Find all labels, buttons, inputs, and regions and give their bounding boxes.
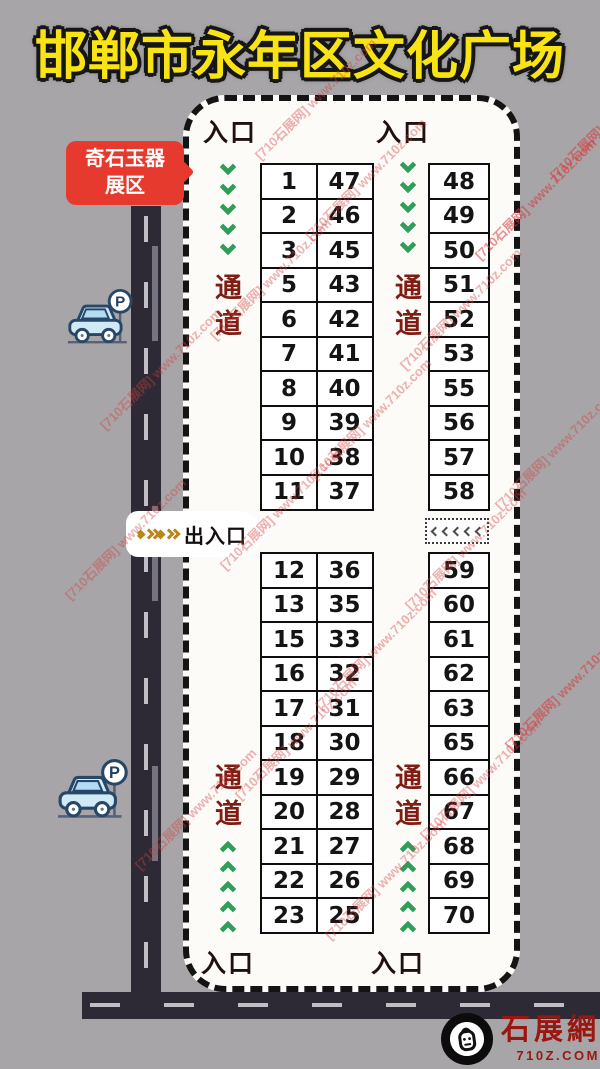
aisle-label-top-middle: 通道 <box>387 273 426 345</box>
stall-cell: 30 <box>316 725 374 762</box>
chevron-down-icon <box>220 199 237 216</box>
stall-cell: 56 <box>428 405 490 442</box>
stall-row: 67 <box>428 794 490 831</box>
chevron-down-icon <box>220 239 237 256</box>
chevron-down-icon <box>400 197 417 214</box>
entrance-label-top-left: 入口 <box>203 113 257 149</box>
stall-row: 66 <box>428 759 490 796</box>
site-url: 710Z.COM <box>516 1048 600 1063</box>
stall-cell: 55 <box>428 370 490 407</box>
stall-row: 2325 <box>260 897 374 934</box>
stall-cell: 37 <box>316 474 374 511</box>
stall-cell: 31 <box>316 690 374 727</box>
road-lane-marking <box>144 216 148 996</box>
stall-cell: 42 <box>316 301 374 338</box>
stall-cell: 21 <box>260 828 318 865</box>
stall-cell: 8 <box>260 370 318 407</box>
stall-cell: 50 <box>428 232 490 269</box>
stall-row: 543 <box>260 267 374 304</box>
stall-cell: 49 <box>428 198 490 235</box>
stall-cell: 47 <box>316 163 374 200</box>
parking-car-icon: P <box>56 758 138 822</box>
stall-row: 1533 <box>260 621 374 658</box>
chevron-up-icon <box>400 841 417 858</box>
stall-row: 49 <box>428 198 490 235</box>
aisle-arrows-down-left <box>213 161 243 253</box>
chevron-up-icon <box>400 921 417 938</box>
badge-line2: 展区 <box>105 173 145 200</box>
aisle-label-top-left: 通道 <box>207 273 246 345</box>
stall-cell: 58 <box>428 474 490 511</box>
stall-table-bottom-right: 5960616263656667686970 <box>428 552 490 934</box>
stone-glyph-icon <box>455 1024 479 1054</box>
stall-cell: 13 <box>260 587 318 624</box>
stall-cell: 29 <box>316 759 374 796</box>
chevron-up-icon <box>400 901 417 918</box>
parking-p-sign: P <box>109 764 120 782</box>
stall-cell: 52 <box>428 301 490 338</box>
side-gate-marker <box>425 518 489 544</box>
stall-row: 1632 <box>260 656 374 693</box>
stall-row: 52 <box>428 301 490 338</box>
parking-p-sign: P <box>115 294 125 311</box>
stall-cell: 67 <box>428 794 490 831</box>
chevron-down-icon <box>400 237 417 254</box>
stall-row: 1137 <box>260 474 374 511</box>
chevron-left-icon <box>452 526 462 536</box>
stall-cell: 12 <box>260 552 318 589</box>
stall-cell: 63 <box>428 690 490 727</box>
stall-row: 1929 <box>260 759 374 796</box>
stall-row: 2127 <box>260 828 374 865</box>
stall-row: 1830 <box>260 725 374 762</box>
aisle-arrows-down-middle <box>393 159 423 251</box>
stall-row: 51 <box>428 267 490 304</box>
stall-cell: 6 <box>260 301 318 338</box>
entrance-exit-gate: 出入口 <box>126 511 262 557</box>
stall-cell: 23 <box>260 897 318 934</box>
stall-cell: 38 <box>316 439 374 476</box>
stall-row: 63 <box>428 690 490 727</box>
stall-cell: 66 <box>428 759 490 796</box>
badge-line1: 奇石玉器 <box>85 146 165 173</box>
stall-row: 246 <box>260 198 374 235</box>
stall-cell: 11 <box>260 474 318 511</box>
stall-row: 2226 <box>260 863 374 900</box>
stall-cell: 32 <box>316 656 374 693</box>
stall-cell: 17 <box>260 690 318 727</box>
stall-cell: 25 <box>316 897 374 934</box>
stall-table-top-left: 14724634554364274184093910381137 <box>260 163 374 511</box>
stall-cell: 27 <box>316 828 374 865</box>
stall-cell: 33 <box>316 621 374 658</box>
chevron-up-icon <box>220 881 237 898</box>
stall-cell: 45 <box>316 232 374 269</box>
stall-cell: 40 <box>316 370 374 407</box>
chevron-left-icon <box>430 526 440 536</box>
aisle-arrows-up-middle <box>393 843 423 935</box>
chevron-up-icon <box>400 861 417 878</box>
stall-cell: 53 <box>428 336 490 373</box>
entrance-label-bottom-left: 入口 <box>201 944 255 980</box>
stall-cell: 26 <box>316 863 374 900</box>
stall-cell: 48 <box>428 163 490 200</box>
chevron-up-icon <box>400 881 417 898</box>
aisle-label-bottom-middle: 通道 <box>387 763 426 835</box>
stall-cell: 57 <box>428 439 490 476</box>
stall-table-bottom-left: 1236133515331632173118301929202821272226… <box>260 552 374 934</box>
chevron-up-icon <box>220 901 237 918</box>
stall-row: 62 <box>428 656 490 693</box>
site-logo-icon <box>438 1010 497 1069</box>
chevron-up-icon <box>220 921 237 938</box>
stall-cell: 59 <box>428 552 490 589</box>
stall-cell: 5 <box>260 267 318 304</box>
stall-row: 59 <box>428 552 490 589</box>
stall-cell: 36 <box>316 552 374 589</box>
stall-cell: 3 <box>260 232 318 269</box>
stall-cell: 46 <box>316 198 374 235</box>
site-logo: 石展網 710Z.COM <box>441 1013 600 1065</box>
chevron-down-icon <box>220 159 237 176</box>
chevron-down-icon <box>220 179 237 196</box>
stall-row: 1335 <box>260 587 374 624</box>
stall-row: 840 <box>260 370 374 407</box>
stall-cell: 62 <box>428 656 490 693</box>
site-logo-text: 石展網 710Z.COM <box>501 1016 600 1063</box>
chevron-down-icon <box>400 217 417 234</box>
page-title: 邯郸市永年区文化广场 <box>0 14 600 89</box>
chevron-up-icon <box>220 841 237 858</box>
gate-label: 出入口 <box>184 520 247 549</box>
stall-row: 1731 <box>260 690 374 727</box>
stall-cell: 69 <box>428 863 490 900</box>
road-curb-marking <box>152 246 158 996</box>
stall-row: 56 <box>428 405 490 442</box>
stall-cell: 9 <box>260 405 318 442</box>
stall-cell: 22 <box>260 863 318 900</box>
stall-cell: 61 <box>428 621 490 658</box>
site-name: 石展網 <box>501 1016 600 1045</box>
chevron-left-icon <box>474 526 484 536</box>
stall-cell: 65 <box>428 725 490 762</box>
stall-row: 48 <box>428 163 490 200</box>
stall-row: 55 <box>428 370 490 407</box>
stall-cell: 41 <box>316 336 374 373</box>
chevron-down-icon <box>220 219 237 236</box>
stall-row: 642 <box>260 301 374 338</box>
stall-row: 50 <box>428 232 490 269</box>
stall-row: 1038 <box>260 439 374 476</box>
stall-cell: 1 <box>260 163 318 200</box>
chevron-up-icon <box>220 861 237 878</box>
stall-cell: 18 <box>260 725 318 762</box>
stall-cell: 10 <box>260 439 318 476</box>
stall-cell: 70 <box>428 897 490 934</box>
stall-row: 57 <box>428 439 490 476</box>
stall-row: 68 <box>428 828 490 865</box>
stall-row: 2028 <box>260 794 374 831</box>
stall-row: 345 <box>260 232 374 269</box>
stall-row: 60 <box>428 587 490 624</box>
parking-car-icon: P <box>66 288 142 347</box>
stall-cell: 60 <box>428 587 490 624</box>
stall-cell: 43 <box>316 267 374 304</box>
stall-row: 1236 <box>260 552 374 589</box>
chevron-down-icon <box>400 157 417 174</box>
venue-map-page: 邯郸市永年区文化广场 P P 入口 入口 入口 入口 <box>0 0 600 1069</box>
stall-cell: 7 <box>260 336 318 373</box>
stall-row: 939 <box>260 405 374 442</box>
chevron-left-icon <box>441 526 451 536</box>
stall-row: 147 <box>260 163 374 200</box>
stall-cell: 20 <box>260 794 318 831</box>
stall-cell: 28 <box>316 794 374 831</box>
stall-row: 70 <box>428 897 490 934</box>
stall-cell: 19 <box>260 759 318 796</box>
stall-row: 53 <box>428 336 490 373</box>
stall-cell: 2 <box>260 198 318 235</box>
stall-cell: 15 <box>260 621 318 658</box>
stall-cell: 16 <box>260 656 318 693</box>
road-lane-marking <box>90 1003 600 1007</box>
aisle-arrows-up-left <box>213 843 243 935</box>
stall-cell: 51 <box>428 267 490 304</box>
aisle-label-bottom-left: 通道 <box>207 763 246 835</box>
stall-row: 61 <box>428 621 490 658</box>
stall-cell: 35 <box>316 587 374 624</box>
stall-cell: 68 <box>428 828 490 865</box>
chevron-down-icon <box>400 177 417 194</box>
entrance-label-top-right: 入口 <box>376 113 430 149</box>
entrance-label-bottom-right: 入口 <box>371 944 425 980</box>
stall-row: 741 <box>260 336 374 373</box>
stall-row: 69 <box>428 863 490 900</box>
stall-row: 58 <box>428 474 490 511</box>
stall-cell: 39 <box>316 405 374 442</box>
chevron-left-icon <box>463 526 473 536</box>
stall-row: 65 <box>428 725 490 762</box>
stall-table-top-right: 48495051525355565758 <box>428 163 490 511</box>
exhibition-area-badge: 奇石玉器 展区 <box>66 141 184 205</box>
